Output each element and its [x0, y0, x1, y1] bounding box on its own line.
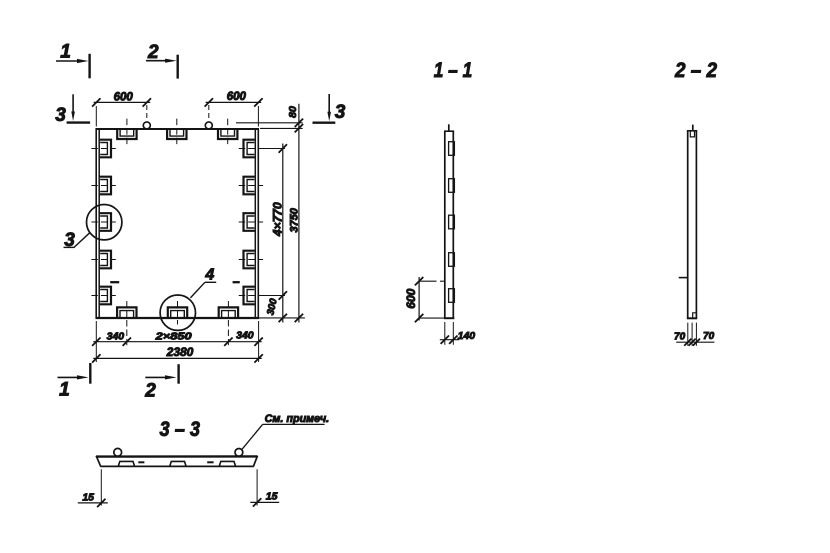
svg-text:1: 1: [60, 42, 71, 63]
svg-text:600: 600: [227, 91, 247, 103]
svg-text:3750: 3750: [288, 207, 300, 232]
svg-text:70: 70: [674, 331, 686, 342]
svg-text:70: 70: [703, 331, 715, 342]
svg-text:2380: 2380: [166, 345, 194, 359]
svg-text:600: 600: [114, 92, 134, 104]
svg-text:600: 600: [404, 288, 418, 308]
svg-text:1: 1: [59, 380, 70, 401]
svg-text:340: 340: [107, 330, 125, 342]
svg-text:15: 15: [266, 491, 278, 503]
svg-text:15: 15: [82, 492, 94, 504]
svg-text:3 – 3: 3 – 3: [160, 418, 201, 441]
svg-text:1 – 1: 1 – 1: [434, 59, 473, 82]
svg-text:80: 80: [287, 106, 299, 118]
svg-text:4: 4: [204, 266, 214, 283]
svg-text:3: 3: [55, 105, 66, 126]
svg-text:4×770: 4×770: [271, 202, 285, 237]
svg-text:2: 2: [147, 42, 159, 63]
svg-text:3: 3: [335, 102, 346, 123]
svg-text:3: 3: [64, 230, 75, 251]
svg-text:2×850: 2×850: [154, 331, 191, 343]
svg-text:140: 140: [458, 330, 476, 342]
svg-text:2 – 2: 2 – 2: [674, 59, 717, 82]
svg-text:2: 2: [144, 381, 156, 402]
svg-text:См. примеч.: См. примеч.: [265, 413, 330, 425]
svg-text:340: 340: [236, 330, 254, 342]
